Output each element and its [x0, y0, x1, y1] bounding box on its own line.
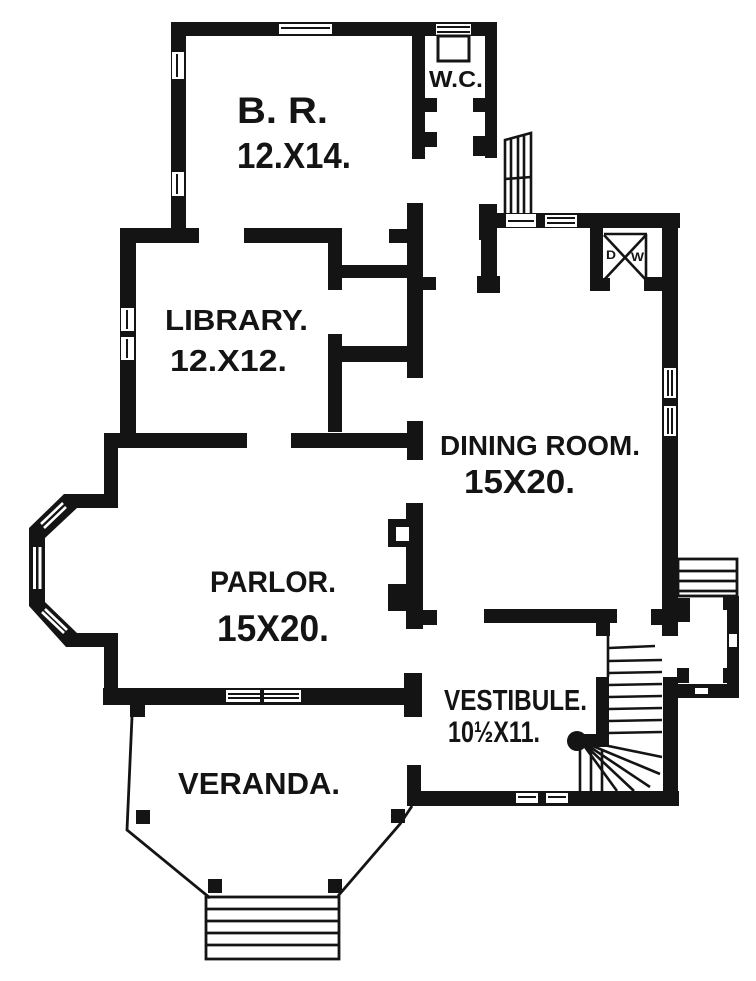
svg-text:D: D: [606, 248, 616, 262]
svg-text:LIBRARY.: LIBRARY.: [165, 305, 308, 337]
svg-text:PARLOR.: PARLOR.: [210, 566, 336, 599]
svg-text:10½X11.: 10½X11.: [448, 716, 540, 749]
svg-text:W.C.: W.C.: [429, 66, 483, 92]
svg-text:15X20.: 15X20.: [217, 608, 329, 649]
svg-text:W: W: [631, 250, 645, 264]
svg-text:DINING ROOM.: DINING ROOM.: [440, 430, 640, 461]
svg-text:12.X12.: 12.X12.: [170, 343, 287, 378]
svg-text:12.X14.: 12.X14.: [237, 135, 351, 176]
svg-text:15X20.: 15X20.: [464, 463, 575, 500]
svg-text:VERANDA.: VERANDA.: [178, 766, 340, 801]
svg-text:VESTIBULE.: VESTIBULE.: [444, 685, 587, 717]
svg-text:B. R.: B. R.: [237, 90, 328, 131]
